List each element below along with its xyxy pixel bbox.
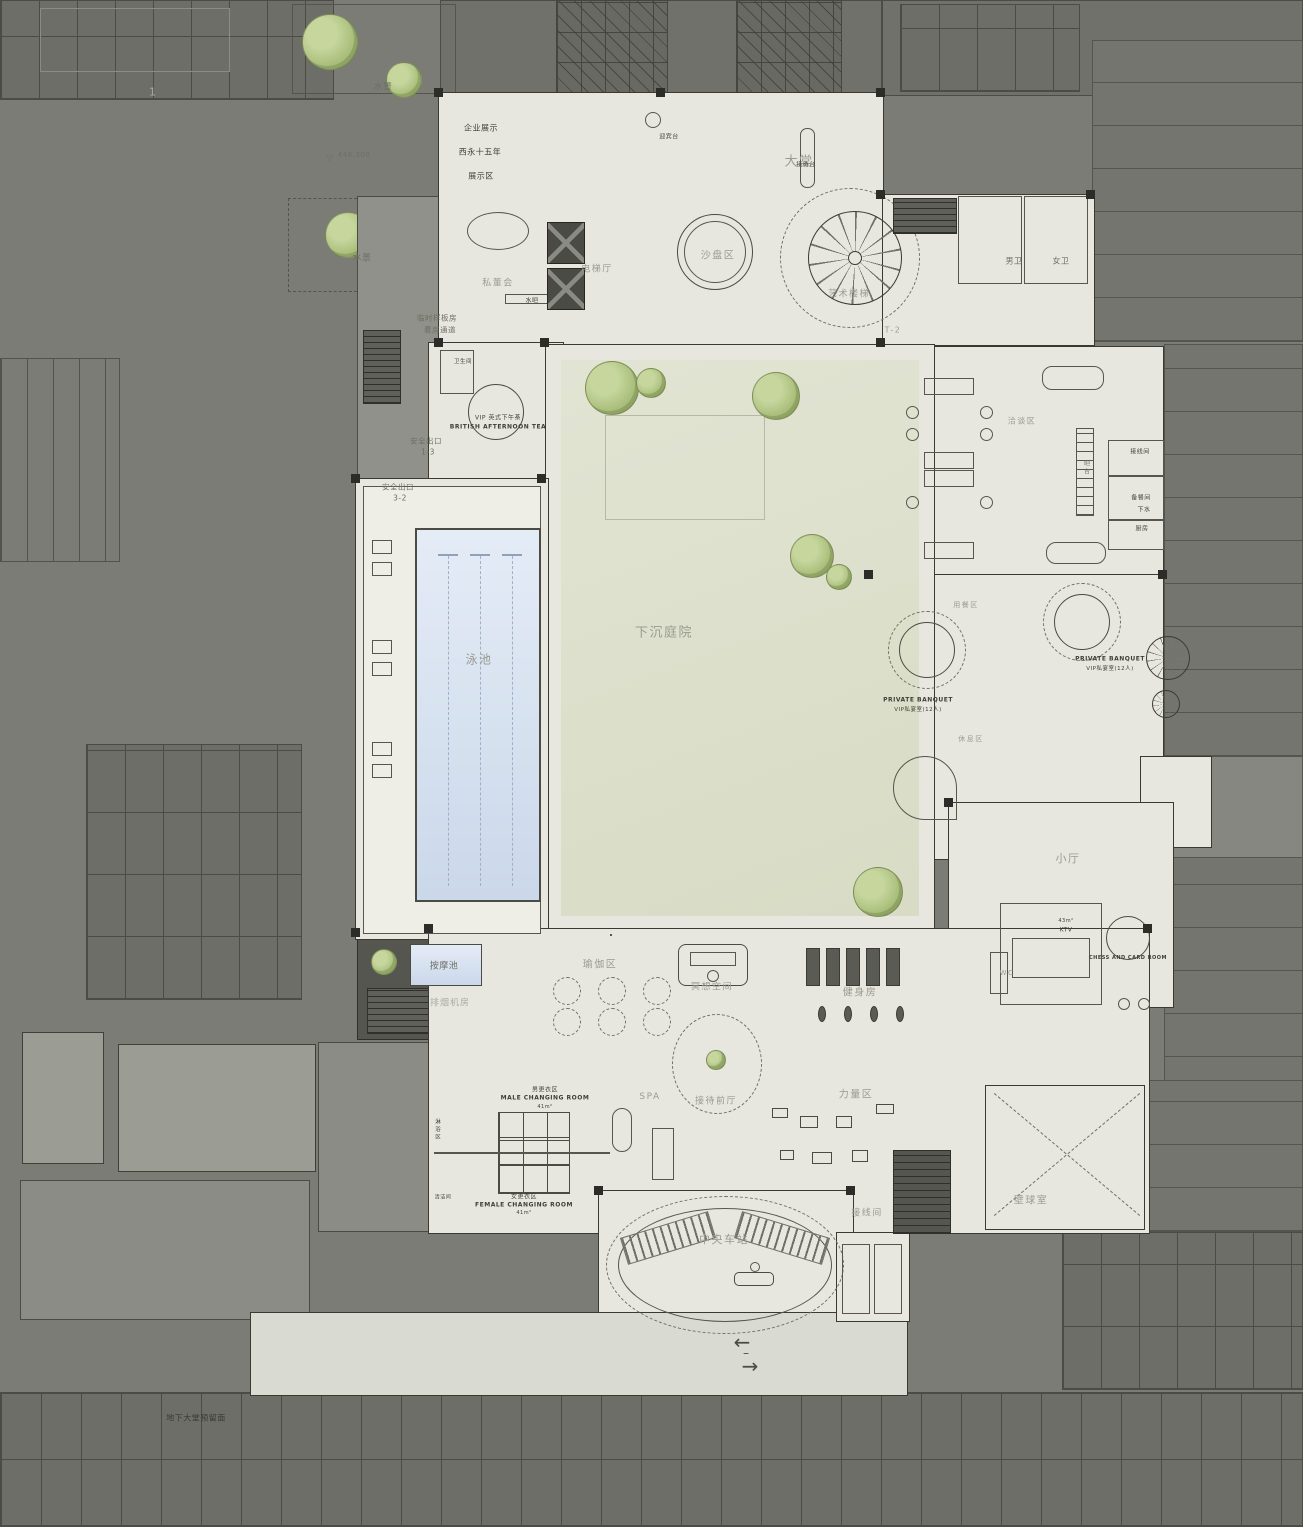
- label-reception-front-hall: 接待前厅: [695, 1094, 737, 1107]
- label-womens-toilet: 女卫: [1053, 256, 1070, 267]
- label-chess-card-room: CHESS AND CARD ROOM: [1089, 955, 1167, 961]
- label-rest-area: 休息区: [958, 734, 984, 744]
- label-temp-model-line1: 临时样板房: [417, 313, 457, 324]
- label-art-staircase: 艺术楼梯: [828, 287, 870, 300]
- label-female-changing-area: 41m²: [516, 1210, 531, 1216]
- label-level-mark: 448.300: [338, 151, 370, 159]
- label-exhibit-line3: 展示区: [468, 171, 494, 182]
- label-banquet1-en: PRIVATE BANQUET: [883, 697, 953, 704]
- label-drain: 下水: [1137, 505, 1150, 514]
- label-sand-table-area: 沙盘区: [701, 247, 736, 262]
- label-safety-exit-32: 安全出口: [382, 482, 414, 493]
- label-wiring-room-right: 接线间: [1130, 447, 1150, 456]
- label-male-changing-cn: 男更衣区: [532, 1085, 558, 1094]
- label-male-changing-area: 41m²: [537, 1104, 552, 1110]
- label-tea-washroom: 卫生间: [454, 357, 472, 365]
- label-greeting-desk: 迎宾台: [659, 132, 679, 141]
- label-water-bar: 水吧: [525, 296, 538, 305]
- label-temp-model-line2: 看房通道: [424, 325, 456, 336]
- label-shower-area: 淋浴区: [433, 1119, 441, 1142]
- label-sunken-courtyard: 下沉庭院: [635, 622, 693, 641]
- label-male-changing-en: MALE CHANGING ROOM: [501, 1095, 590, 1102]
- label-banquet1-cn: VIP私宴室(12人): [894, 705, 942, 713]
- label-elevator-hall: 电梯厅: [581, 262, 613, 275]
- label-dining-area: 用餐区: [953, 600, 979, 610]
- label-negotiation-area: 洽谈区: [1008, 416, 1037, 427]
- label-female-changing-cn: 女更衣区: [511, 1192, 537, 1201]
- label-exhibit-line1: 企业展示: [464, 123, 498, 134]
- label-ktv-area: 43m²: [1058, 918, 1073, 924]
- label-prep-room: 备餐间: [1131, 493, 1151, 502]
- label-mens-toilet: 男卫: [1006, 256, 1023, 267]
- label-vip-tea-cn: VIP 英式下午茶: [475, 413, 521, 422]
- floor-plan-canvas: ▽: [0, 0, 1303, 1527]
- label-small-hall: 小厅: [1056, 850, 1081, 866]
- label-basement-lobby-note: 地下大堂预留面: [166, 1413, 226, 1424]
- label-yoga-area: 瑜伽区: [583, 956, 618, 971]
- label-safety-exit-13b: 1-3: [421, 448, 435, 457]
- label-spa: SPA: [639, 1092, 660, 1102]
- label-kitchen: 厨房: [1135, 524, 1148, 533]
- label-reception-desk: 接待台: [796, 160, 816, 169]
- label-female-changing-en: FEMALE CHANGING ROOM: [475, 1202, 573, 1209]
- label-gym: 健身房: [843, 984, 878, 999]
- label-banquet2-en: PRIVATE BANQUET: [1075, 656, 1145, 663]
- label-wc: WC: [1000, 969, 1015, 977]
- label-wiring-room-bottom: 接线间: [851, 1206, 883, 1219]
- label-exhibit-line2: 西永十五年: [459, 147, 502, 158]
- label-massage-pool: 按摩池: [430, 959, 459, 972]
- label-ktv: KTV: [1060, 927, 1073, 934]
- label-pool: 泳池: [465, 651, 492, 668]
- label-safety-exit-13: 安全出口: [410, 436, 442, 447]
- label-ref-1: 1: [149, 86, 157, 99]
- label-private-board-room: 私董会: [482, 276, 514, 289]
- label-layer: 1水景448.300水景企业展示西永十五年展示区大堂迎宾台接待台沙盘区艺术楼梯私…: [0, 0, 1303, 1527]
- label-water-feature-top: 水景: [373, 80, 392, 93]
- label-grid-ref: T-2: [885, 326, 902, 335]
- label-squash-room: 壁球室: [1014, 1192, 1049, 1207]
- label-smoke-exhaust-room: 排烟机房: [430, 996, 470, 1009]
- label-water-feature-left: 水景: [352, 251, 371, 264]
- label-strength-area: 力量区: [839, 1086, 874, 1101]
- label-central-station: 中央车站: [699, 1231, 749, 1247]
- label-vip-tea-en: BRITISH AFTERNOON TEA: [450, 424, 546, 431]
- label-bar-counter: 吧台: [1082, 460, 1091, 476]
- label-meditation-space: 冥想空间: [691, 980, 733, 993]
- label-cleaning-room: 清洁间: [435, 1194, 452, 1201]
- label-safety-exit-32b: 3-2: [393, 494, 407, 503]
- label-banquet2-cn: VIP私宴室(12人): [1086, 664, 1134, 672]
